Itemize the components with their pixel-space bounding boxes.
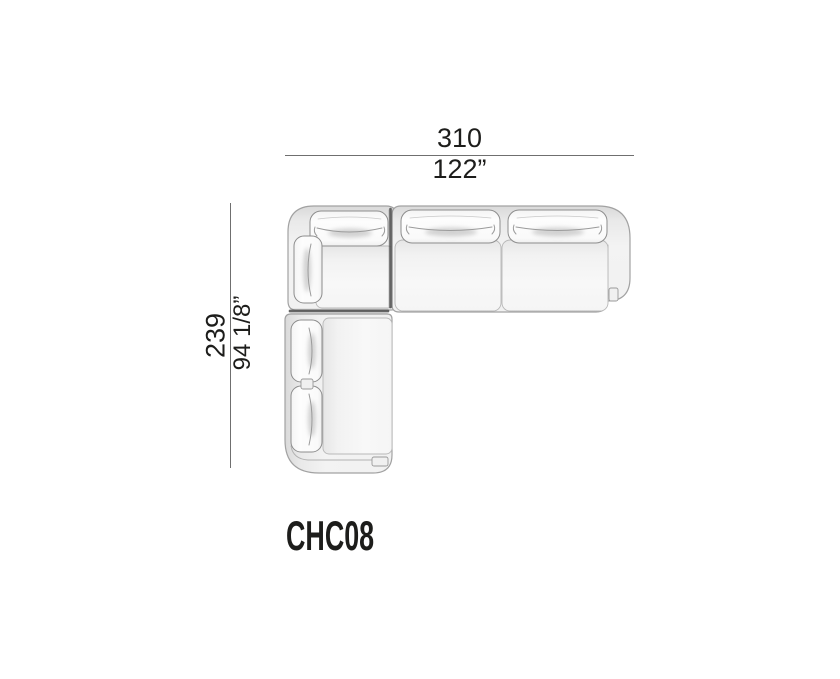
chaise-back-cushion-upper bbox=[291, 320, 322, 382]
corner-seat-cushion bbox=[316, 246, 394, 308]
depth-metric-label: 239 bbox=[203, 291, 230, 381]
depth-imperial-label: 94 1/8” bbox=[231, 278, 255, 388]
sofa-top-view-drawing bbox=[280, 198, 636, 480]
product-code-label: CHC08 bbox=[286, 515, 374, 557]
chaise-seat-cushion bbox=[323, 318, 392, 454]
chaise-section bbox=[285, 314, 392, 473]
middle-back-cushion bbox=[401, 210, 500, 243]
middle-seat-cushion bbox=[395, 240, 501, 311]
right-seat-cushion bbox=[502, 240, 608, 311]
corner-section bbox=[288, 206, 397, 310]
sofa-foot-right bbox=[609, 288, 618, 301]
width-metric-label: 310 bbox=[285, 125, 634, 152]
width-imperial-label: 122” bbox=[285, 156, 634, 183]
right-back-cushion bbox=[508, 210, 607, 243]
chaise-back-cushion-lower bbox=[291, 386, 322, 452]
diagram-canvas: 310 122” 239 94 1/8” CHC08 bbox=[0, 0, 840, 679]
sofa-foot-bottom bbox=[372, 457, 388, 466]
cushion-link bbox=[301, 379, 313, 389]
right-sofa-section bbox=[392, 206, 630, 312]
corner-back-cushion bbox=[310, 211, 388, 246]
